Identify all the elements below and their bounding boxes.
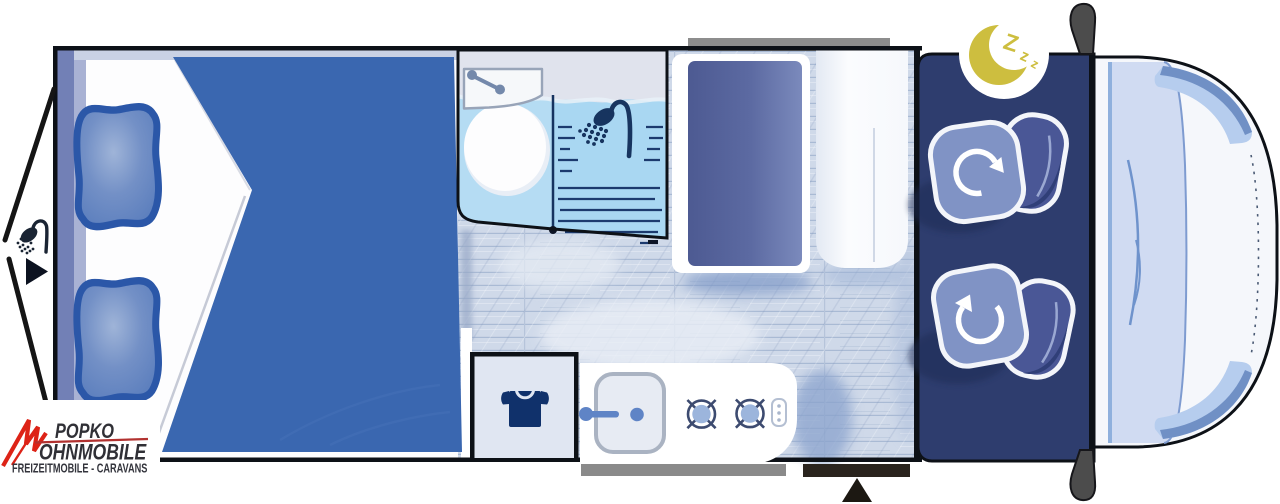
- svg-text:FREIZEITMOBILE - CARAVANS: FREIZEITMOBILE - CARAVANS: [12, 462, 147, 476]
